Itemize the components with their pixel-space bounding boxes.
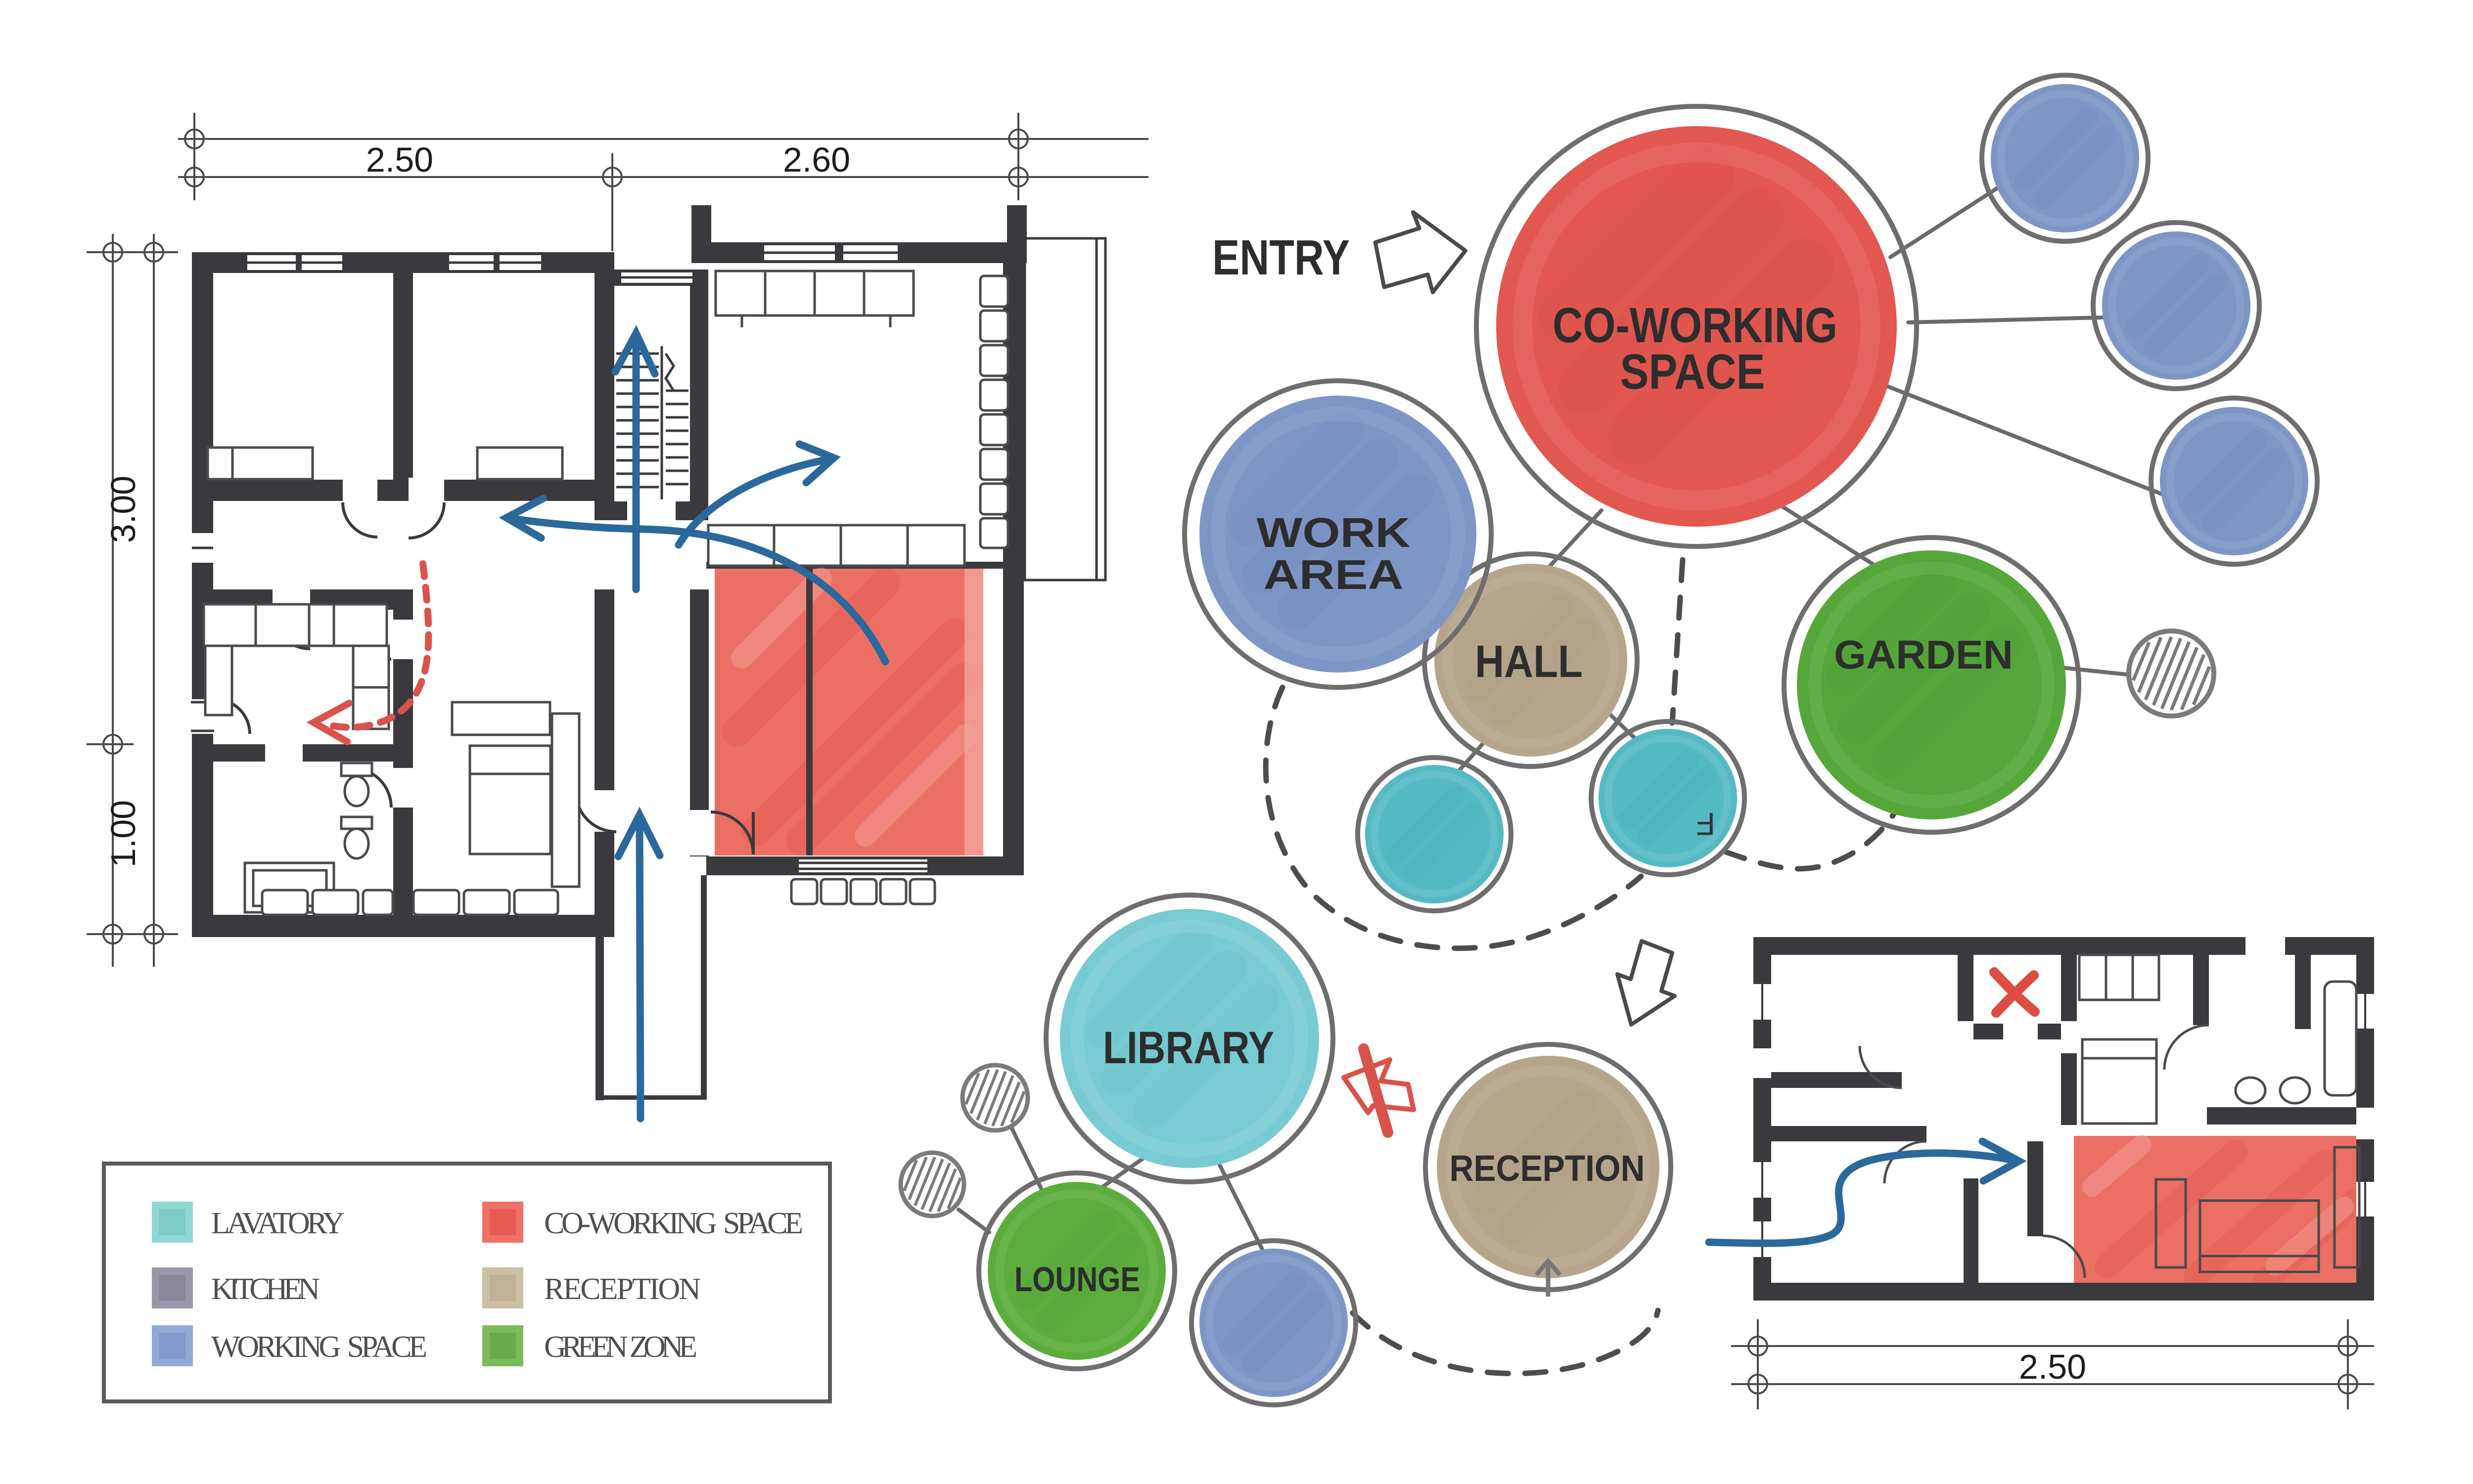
svg-text:WORK: WORK: [1257, 509, 1411, 556]
svg-text:GARDEN: GARDEN: [1834, 632, 2013, 677]
svg-text:3.00: 3.00: [104, 476, 142, 543]
svg-text:LOUNGE: LOUNGE: [1014, 1260, 1140, 1299]
svg-text:AREA: AREA: [1264, 551, 1404, 598]
svg-text:RECEPTION: RECEPTION: [1450, 1148, 1645, 1189]
svg-text:2.60: 2.60: [783, 140, 850, 179]
svg-text:RECEPTION: RECEPTION: [544, 1272, 701, 1306]
svg-text:GREEN ZONE: GREEN ZONE: [544, 1330, 697, 1364]
svg-text:WORKING SPACE: WORKING SPACE: [211, 1330, 427, 1364]
svg-text:2.50: 2.50: [2019, 1348, 2086, 1386]
svg-text:CO-WORKING SPACE: CO-WORKING SPACE: [544, 1207, 803, 1240]
svg-text:SPACE: SPACE: [1620, 344, 1765, 400]
svg-text:HALL: HALL: [1475, 636, 1583, 687]
svg-text:ENTRY: ENTRY: [1212, 230, 1350, 285]
svg-text:F: F: [1696, 806, 1715, 842]
svg-text:LIBRARY: LIBRARY: [1103, 1023, 1274, 1073]
svg-text:LAVATORY: LAVATORY: [211, 1207, 345, 1240]
svg-text:1.00: 1.00: [104, 800, 142, 867]
svg-text:2.50: 2.50: [366, 140, 433, 179]
svg-text:KITCHEN: KITCHEN: [211, 1272, 320, 1306]
